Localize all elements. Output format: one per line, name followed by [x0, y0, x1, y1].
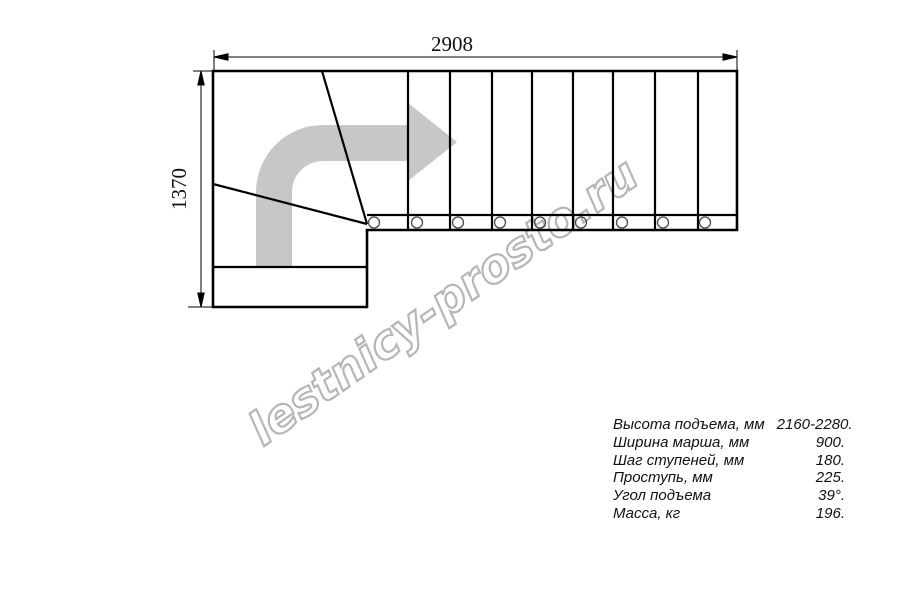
dimension-left	[188, 71, 213, 307]
dimension-arrow-right	[723, 54, 737, 60]
baluster-circle	[700, 217, 711, 228]
spec-value: 39°.	[818, 487, 845, 505]
spec-label: Высота подъема, мм	[613, 416, 765, 434]
spec-row-mass: Масса, кг 196.	[613, 505, 845, 523]
spec-label: Угол подъема	[613, 487, 711, 505]
baluster-circle	[412, 217, 423, 228]
baluster-circle	[495, 217, 506, 228]
spec-row-step-rise: Шаг ступеней, мм 180.	[613, 452, 845, 470]
spec-label: Проступь, мм	[613, 469, 713, 487]
staircase-drawing-page: lestnicy-prosto.ru 2908	[0, 0, 900, 600]
spec-row-flight-width: Ширина марша, мм 900.	[613, 434, 845, 452]
spec-row-height: Высота подъема, мм 2160-2280.	[613, 416, 845, 434]
dimension-arrow-bottom	[198, 293, 204, 307]
dimension-left-value: 1370	[167, 168, 191, 210]
baluster-circle	[453, 217, 464, 228]
spec-label: Масса, кг	[613, 505, 680, 523]
specs-table: Высота подъема, мм 2160-2280. Ширина мар…	[613, 416, 845, 523]
spec-value: 900.	[816, 434, 845, 452]
baluster-circle	[617, 217, 628, 228]
watermark-text: lestnicy-prosto.ru	[238, 147, 647, 456]
spec-value: 225.	[816, 469, 845, 487]
baluster-circle	[369, 217, 380, 228]
spec-row-angle: Угол подъема 39°.	[613, 487, 845, 505]
dimension-top	[214, 50, 737, 70]
spec-label: Ширина марша, мм	[613, 434, 749, 452]
spec-label: Шаг ступеней, мм	[613, 452, 744, 470]
spec-row-tread-depth: Проступь, мм 225.	[613, 469, 845, 487]
dimension-arrow-left	[214, 54, 228, 60]
spec-value: 196.	[816, 505, 845, 523]
spec-value: 180.	[816, 452, 845, 470]
baluster-circle	[658, 217, 669, 228]
dimension-arrow-top	[198, 71, 204, 85]
spec-value: 2160-2280.	[777, 416, 853, 434]
dimension-top-value: 2908	[431, 32, 473, 56]
